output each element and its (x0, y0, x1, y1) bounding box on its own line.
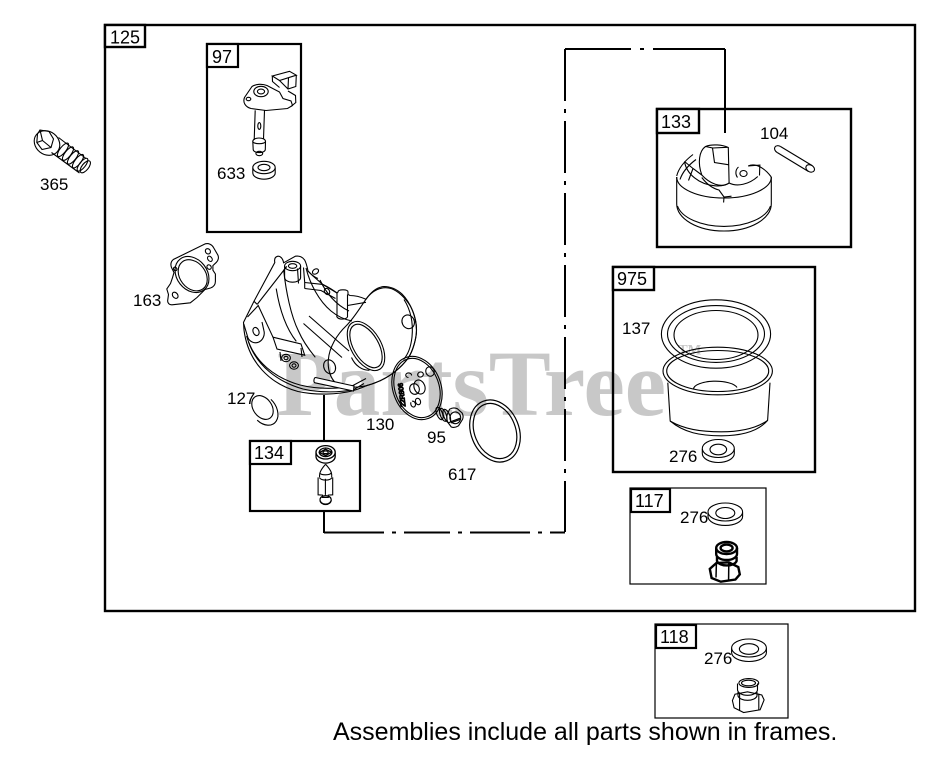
svg-text:975: 975 (617, 269, 647, 289)
svg-text:104: 104 (760, 124, 788, 143)
svg-text:118: 118 (660, 627, 689, 647)
svg-text:276: 276 (669, 447, 697, 466)
svg-text:276: 276 (704, 649, 732, 668)
svg-text:127: 127 (227, 389, 255, 408)
svg-text:276: 276 (680, 508, 708, 527)
svg-text:125: 125 (110, 28, 140, 48)
svg-text:117: 117 (635, 491, 664, 511)
svg-text:134: 134 (254, 443, 284, 463)
svg-text:633: 633 (217, 164, 245, 183)
svg-text:365: 365 (40, 175, 68, 194)
svg-text:130: 130 (366, 415, 394, 434)
svg-text:95: 95 (427, 428, 446, 447)
svg-text:Assemblies include all parts s: Assemblies include all parts shown in fr… (333, 718, 837, 746)
svg-text:163: 163 (133, 291, 161, 310)
svg-text:97: 97 (212, 47, 232, 67)
svg-text:133: 133 (661, 112, 691, 132)
svg-text:137: 137 (622, 319, 650, 338)
svg-text:617: 617 (448, 465, 476, 484)
